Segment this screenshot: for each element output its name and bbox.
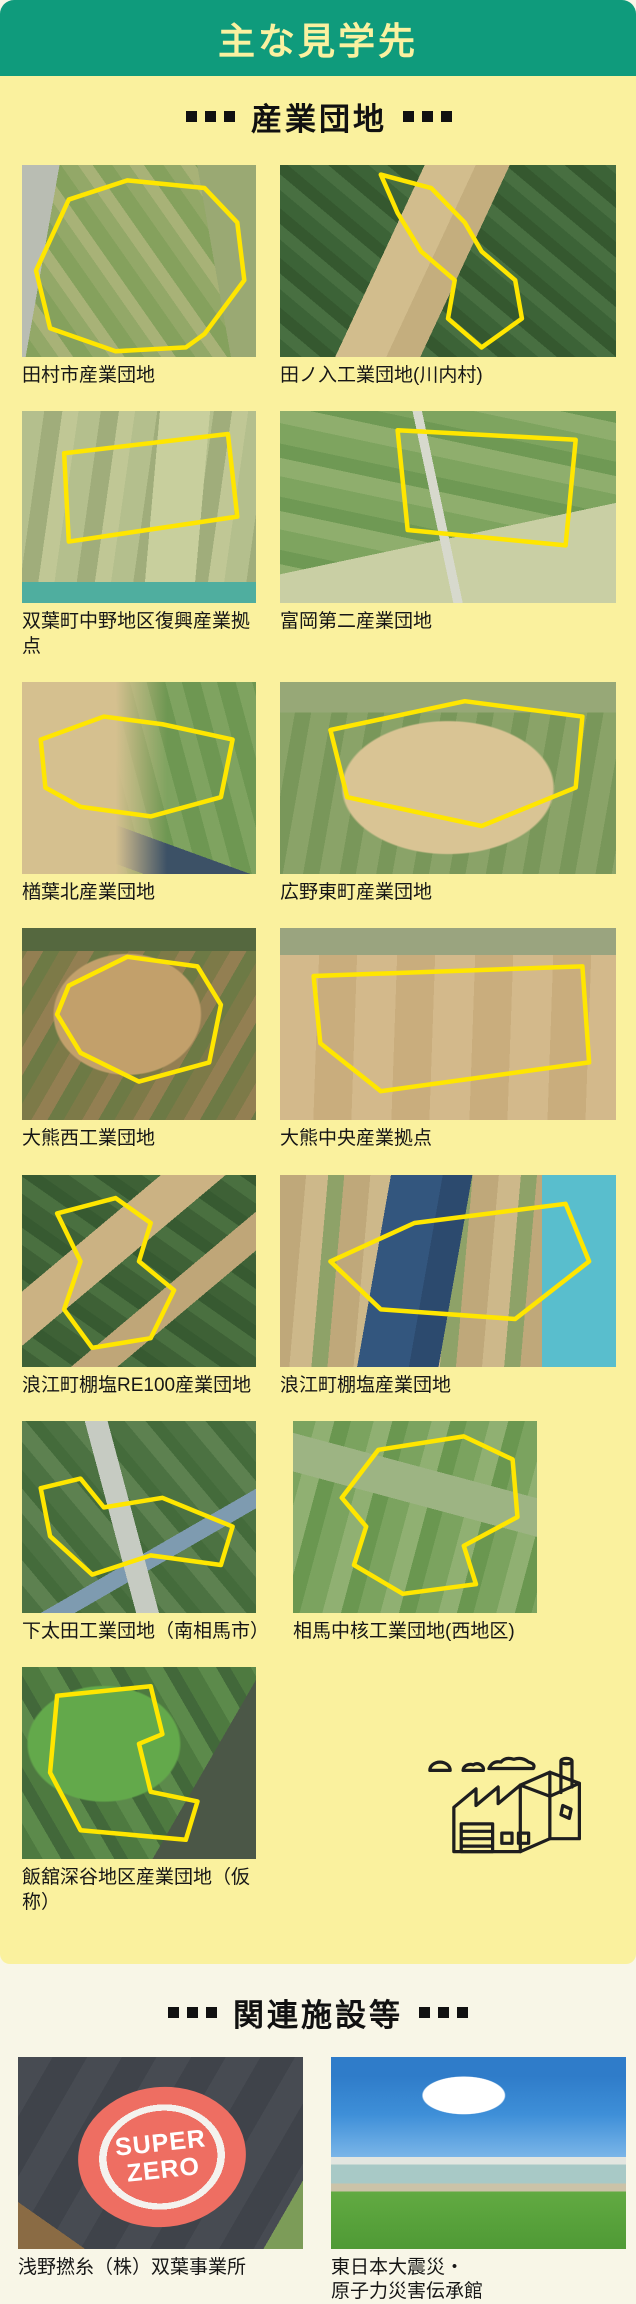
tile-tanoiri: 田ノ入工業団地(川内村) [280,165,616,388]
tile-denshokan: 東日本大震災・ 原子力災害伝承館 [331,2057,626,2304]
louver-window [461,1824,492,1852]
photo-caption: 相馬中核工業団地(西地区) [293,1620,537,1644]
site-outline-icon [280,682,616,874]
aerial-photo-hirono-higashimachi [280,682,616,874]
tile-asano-nenshi: SUPER ZERO 浅野撚糸（株）双葉事業所 [18,2057,303,2280]
related-facilities-section: 関連施設等 SUPER ZERO 浅野撚糸（株）双葉事業所 東日本大震災・ 原子… [0,1964,636,2304]
tile-tamura: 田村市産業団地 [22,165,256,388]
tile-namie-tanashio-re100: 浪江町棚塩RE100産業団地 [22,1175,256,1398]
heading-dots-right-icon [419,2007,468,2018]
site-outline-icon [280,165,616,357]
photo-caption: 東日本大震災・ 原子力災害伝承館 [331,2256,626,2304]
photo-row: 下太田工業団地（南相馬市） 相馬中核工業団地(西地区) [22,1421,616,1644]
site-outline-icon [22,411,256,603]
photo-caption: 広野東町産業団地 [280,881,616,905]
site-outline-icon [280,1175,616,1367]
heading-dots-right-icon [403,111,452,122]
tile-futaba-nakano: 双葉町中野地区復興産業拠点 [22,411,256,659]
aerial-photo-okuma-chuo [280,928,616,1120]
photo-caption: 大熊西工業団地 [22,1127,256,1151]
photo-caption: 楢葉北産業団地 [22,881,256,905]
tile-tomioka-daini: 富岡第二産業団地 [280,411,616,634]
tile-namie-tanashio: 浪江町棚塩産業団地 [280,1175,616,1398]
section-heading-industrial-parks: 産業団地 [22,94,616,139]
tile-naraha-kita: 楢葉北産業団地 [22,682,256,905]
site-outline-icon [280,411,616,603]
aerial-photo-soma-chukaku [293,1421,537,1613]
photo-caption: 富岡第二産業団地 [280,610,616,634]
photo-row: 飯舘深谷地区産業団地（仮称） [22,1667,616,1915]
photo-caption: 浅野撚糸（株）双葉事業所 [18,2256,303,2280]
window [502,1833,529,1843]
super-zero-building: SUPER ZERO [71,2078,253,2235]
site-outline-icon [22,1667,256,1859]
aerial-photo-iitate-fukaya [22,1667,256,1859]
photo-caption: 大熊中央産業拠点 [280,1127,616,1151]
aerial-photo-okuma-nishi [22,928,256,1120]
industrial-parks-card: 産業団地 田村市産業団地 田ノ入工業団地(川内村) 双葉町中野地区復興産業拠点 [0,76,636,1964]
site-outline-icon [293,1421,537,1613]
tile-iitate-fukaya: 飯舘深谷地区産業団地（仮称） [22,1667,274,1915]
site-outline-icon [22,1421,256,1613]
cloud-icon [430,1762,450,1770]
aerial-photo-tamura [22,165,256,357]
page-header: 主な見学先 [0,0,636,76]
photo-row: 田村市産業団地 田ノ入工業団地(川内村) [22,165,616,388]
cloud-icon [489,1759,534,1769]
section-heading-text: 関連施設等 [233,1990,403,2035]
photo-row: 双葉町中野地区復興産業拠点 富岡第二産業団地 [22,411,616,659]
tile-okuma-chuo: 大熊中央産業拠点 [280,928,616,1151]
aerial-photo-shimoota [22,1421,256,1613]
page-title: 主な見学先 [218,11,418,65]
factory-illustration-cell [298,1667,616,1859]
factory-body [454,1785,520,1851]
photo-row: 浪江町棚塩RE100産業団地 浪江町棚塩産業団地 [22,1175,616,1398]
photo-caption: 浪江町棚塩RE100産業団地 [22,1374,256,1398]
diamond-window [561,1806,571,1819]
section-heading-text: 産業団地 [251,94,387,139]
photo-caption: 浪江町棚塩産業団地 [280,1374,616,1398]
aerial-photo-futaba-nakano [22,411,256,603]
site-outline-icon [22,1175,256,1367]
site-outline-icon [22,928,256,1120]
site-outline-icon [280,928,616,1120]
tile-hirono-higashimachi: 広野東町産業団地 [280,682,616,905]
tile-shimoota: 下太田工業団地（南相馬市） [22,1421,269,1644]
photo-denshokan [331,2057,626,2249]
photo-row: 楢葉北産業団地 広野東町産業団地 [22,682,616,905]
photo-caption: 下太田工業団地（南相馬市） [22,1620,269,1644]
factory-icon [412,1739,612,1859]
photo-row: 大熊西工業団地 大熊中央産業拠点 [22,928,616,1151]
tile-okuma-nishi: 大熊西工業団地 [22,928,256,1151]
aerial-photo-namie-tanashio [280,1175,616,1367]
tile-soma-chukaku: 相馬中核工業団地(西地区) [293,1421,537,1644]
aerial-photo-asano-nenshi: SUPER ZERO [18,2057,303,2249]
factory-body [520,1772,550,1851]
aerial-photo-tomioka-daini [280,411,616,603]
site-outline-icon [22,682,256,874]
photo-caption: 双葉町中野地区復興産業拠点 [22,610,256,659]
aerial-photo-namie-tanashio-re100 [22,1175,256,1367]
section-heading-related-facilities: 関連施設等 [18,1990,618,2035]
cloud-icon [463,1764,483,1771]
photo-row: SUPER ZERO 浅野撚糸（株）双葉事業所 東日本大震災・ 原子力災害伝承館 [18,2057,618,2304]
building-logo-text: SUPER ZERO [76,2121,249,2193]
heading-dots-left-icon [168,2007,217,2018]
site-outline-icon [22,165,256,357]
photo-caption: 田村市産業団地 [22,364,256,388]
aerial-photo-naraha-kita [22,682,256,874]
photo-caption: 田ノ入工業団地(川内村) [280,364,616,388]
heading-dots-left-icon [186,111,235,122]
aerial-photo-tanoiri [280,165,616,357]
photo-caption: 飯舘深谷地区産業団地（仮称） [22,1866,274,1915]
